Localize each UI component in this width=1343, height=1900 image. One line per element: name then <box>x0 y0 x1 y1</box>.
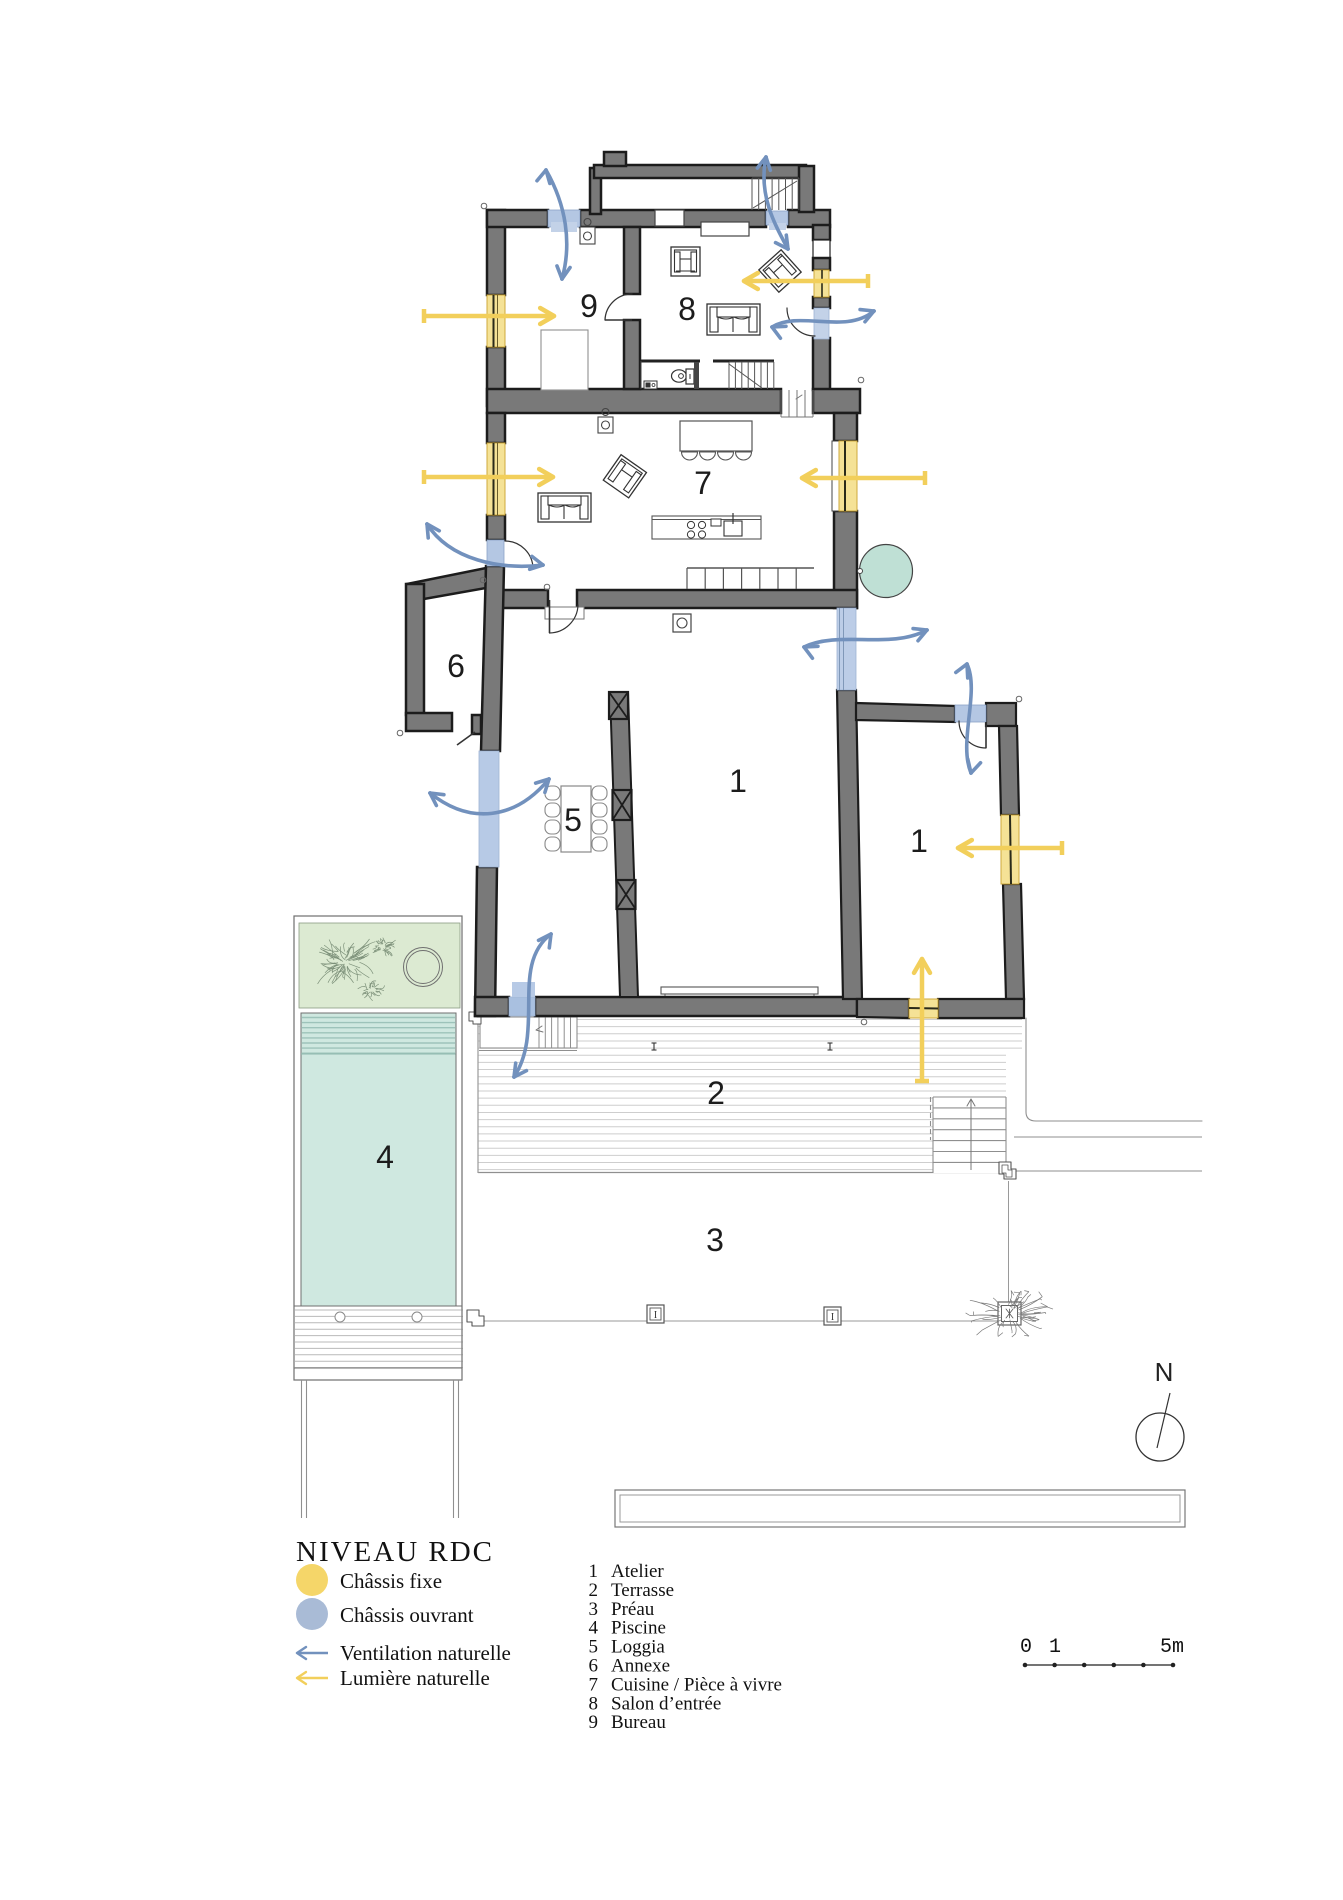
svg-text:Salon d’entrée: Salon d’entrée <box>611 1693 721 1714</box>
svg-text:5: 5 <box>564 802 582 838</box>
svg-text:3: 3 <box>589 1599 599 1620</box>
svg-text:Terrasse: Terrasse <box>611 1580 674 1601</box>
svg-text:NIVEAU RDC: NIVEAU RDC <box>296 1536 494 1568</box>
svg-text:Lumière naturelle: Lumière naturelle <box>340 1666 490 1690</box>
svg-text:Annexe: Annexe <box>611 1656 670 1677</box>
svg-text:4: 4 <box>376 1139 394 1175</box>
svg-text:2: 2 <box>589 1580 599 1601</box>
svg-text:2: 2 <box>707 1075 725 1111</box>
svg-text:Ventilation naturelle: Ventilation naturelle <box>340 1641 511 1665</box>
svg-text:I: I <box>831 1312 834 1323</box>
svg-text:5: 5 <box>589 1637 599 1658</box>
svg-text:Préau: Préau <box>611 1599 655 1620</box>
svg-text:6: 6 <box>589 1656 599 1677</box>
svg-text:Châssis ouvrant: Châssis ouvrant <box>340 1603 474 1627</box>
svg-text:0: 0 <box>1020 1636 1032 1659</box>
svg-text:Bureau: Bureau <box>611 1712 666 1733</box>
svg-text:7: 7 <box>694 465 712 501</box>
svg-text:8: 8 <box>678 291 696 327</box>
svg-text:1: 1 <box>729 763 747 799</box>
svg-text:9: 9 <box>589 1712 599 1733</box>
svg-text:Piscine: Piscine <box>611 1618 666 1639</box>
svg-text:N: N <box>1155 1357 1174 1387</box>
svg-text:3: 3 <box>706 1222 724 1258</box>
svg-text:Châssis fixe: Châssis fixe <box>340 1569 442 1593</box>
svg-text:1: 1 <box>589 1561 599 1582</box>
svg-text:8: 8 <box>589 1693 599 1714</box>
svg-text:5m: 5m <box>1160 1636 1184 1659</box>
svg-text:Cuisine / Pièce à vivre: Cuisine / Pièce à vivre <box>611 1674 782 1695</box>
svg-text:1: 1 <box>1049 1636 1061 1659</box>
svg-text:6: 6 <box>447 648 465 684</box>
svg-text:Loggia: Loggia <box>611 1637 665 1658</box>
svg-text:4: 4 <box>589 1618 599 1639</box>
svg-text:7: 7 <box>589 1674 599 1695</box>
svg-text:1: 1 <box>910 823 928 859</box>
svg-text:Atelier: Atelier <box>611 1561 664 1582</box>
svg-text:I: I <box>654 1310 657 1321</box>
svg-text:9: 9 <box>580 288 598 324</box>
